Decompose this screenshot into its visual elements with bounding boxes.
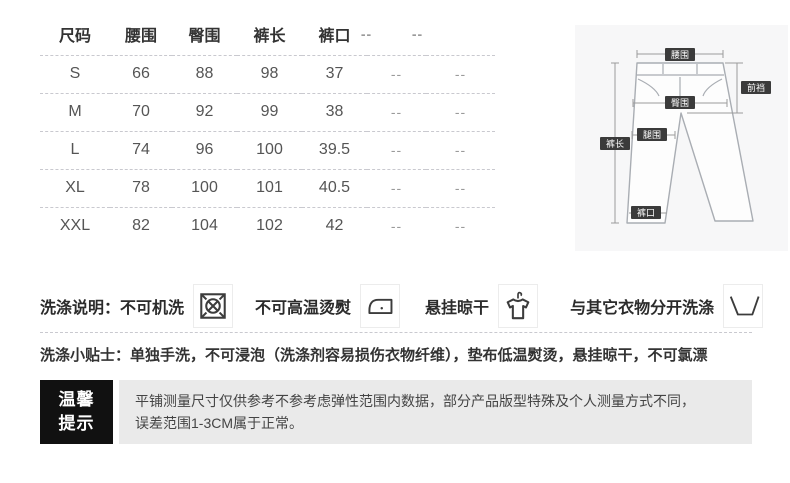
cell-hip: 92 [172, 93, 237, 131]
care-item-hang-dry: 悬挂晾干 [425, 284, 538, 328]
care-item-label: 不可机洗 [120, 294, 184, 318]
cell-dash: -- [367, 131, 426, 169]
wash-tips-text: 单独手洗，不可浸泡（洗涤剂容易损伤衣物纤维），垫布低温熨烫，悬挂晾干，不可氯漂 [130, 347, 708, 364]
cell-dash: -- [426, 93, 495, 131]
cell-hip: 104 [172, 207, 237, 245]
cell-hip: 88 [172, 55, 237, 93]
length-label-text: 裤长 [606, 138, 624, 149]
table-row: XL 78 100 101 40.5 -- -- [40, 169, 495, 207]
cell-waist: 78 [110, 169, 172, 207]
front-rise-label-text: 前裆 [747, 82, 765, 93]
cell-length: 102 [237, 207, 302, 245]
cell-size: S [40, 55, 110, 93]
cell-leg-opening: 42 [302, 207, 367, 245]
pants-measurement-diagram: 腰围 臀围 前裆 腿围 裤长 裤口 [575, 25, 788, 251]
hip-label: 臀围 [665, 96, 695, 109]
warm-notice-text: 平铺测量尺寸仅供参考不参考虑弹性范围内数据，部分产品版型特殊及个人测量方式不同，… [119, 380, 752, 444]
cell-leg-opening: 38 [302, 93, 367, 131]
cell-length: 99 [237, 93, 302, 131]
header-length: 裤长 [237, 14, 302, 55]
notice-line2: 误差范围1-3CM属于正常。 [135, 412, 740, 434]
table-row: M 70 92 99 38 -- -- [40, 93, 495, 131]
leg-opening-label: 裤口 [631, 206, 661, 219]
pants-diagram-svg: 腰围 臀围 前裆 腿围 裤长 裤口 [575, 25, 788, 251]
warm-notice: 温馨 提示 平铺测量尺寸仅供参考不参考虑弹性范围内数据，部分产品版型特殊及个人测… [40, 380, 752, 444]
care-item-no-hot-iron: 不可高温烫熨 [255, 284, 400, 328]
cell-dash: -- [426, 55, 495, 93]
waist-label-text: 腰围 [671, 50, 689, 60]
do-not-iron-icon [360, 284, 400, 328]
header-hip: 臀围 [172, 14, 237, 55]
cell-dash: -- [426, 169, 495, 207]
size-table: 尺码 腰围 臀围 裤长 裤口 -- -- S 66 88 98 37 -- --… [40, 14, 495, 245]
length-label: 裤长 [600, 137, 630, 150]
thigh-label-text: 腿围 [643, 130, 661, 140]
warm-notice-badge: 温馨 提示 [40, 380, 113, 444]
front-rise-label: 前裆 [741, 81, 771, 94]
cell-waist: 70 [110, 93, 172, 131]
cell-leg-opening: 37 [302, 55, 367, 93]
cell-waist: 74 [110, 131, 172, 169]
cell-dash: -- [367, 169, 426, 207]
care-item-label: 与其它衣物分开洗涤 [570, 294, 714, 318]
cell-leg-opening: 39.5 [302, 131, 367, 169]
cell-dash: -- [367, 93, 426, 131]
notice-line1: 平铺测量尺寸仅供参考不参考虑弹性范围内数据，部分产品版型特殊及个人测量方式不同， [135, 390, 740, 412]
cell-dash: -- [426, 207, 495, 245]
badge-line1: 温馨 [59, 388, 95, 412]
hip-label-text: 臀围 [671, 98, 689, 108]
cell-hip: 100 [172, 169, 237, 207]
cell-dash: -- [426, 131, 495, 169]
header-dash: -- [361, 26, 372, 42]
cell-waist: 66 [110, 55, 172, 93]
header-leg-opening: 裤口 [302, 14, 367, 55]
table-row: S 66 88 98 37 -- -- [40, 55, 495, 93]
cell-waist: 82 [110, 207, 172, 245]
header-waist: 腰围 [110, 14, 172, 55]
wash-tips: 洗涤小贴士：单独手洗，不可浸泡（洗涤剂容易损伤衣物纤维），垫布低温熨烫，悬挂晾干… [40, 344, 775, 365]
care-instructions-row: 洗涤说明： 不可机洗 不可高温烫熨 悬挂晾干 [40, 284, 752, 328]
cell-hip: 96 [172, 131, 237, 169]
pants-outline [627, 63, 753, 223]
cell-size: XL [40, 169, 110, 207]
cell-dash: -- [367, 55, 426, 93]
thigh-label: 腿围 [637, 128, 667, 141]
cell-length: 101 [237, 169, 302, 207]
cell-size: L [40, 131, 110, 169]
cell-leg-opening: 40.5 [302, 169, 367, 207]
care-item-wash-separately: 与其它衣物分开洗涤 [570, 284, 763, 328]
care-item-no-machine-wash: 不可机洗 [120, 284, 233, 328]
cell-dash: -- [367, 207, 426, 245]
care-item-label: 不可高温烫熨 [255, 294, 351, 318]
care-item-label: 悬挂晾干 [425, 294, 489, 318]
table-row: XXL 82 104 102 42 -- -- [40, 207, 495, 245]
do-not-machine-wash-icon [193, 284, 233, 328]
badge-line2: 提示 [59, 412, 95, 436]
leg-opening-label-text: 裤口 [637, 207, 655, 218]
cell-size: XXL [40, 207, 110, 245]
wash-tips-title: 洗涤小贴士： [40, 347, 130, 364]
table-row: L 74 96 100 39.5 -- -- [40, 131, 495, 169]
cell-length: 98 [237, 55, 302, 93]
header-dash: -- [412, 26, 423, 42]
table-header-row: 尺码 腰围 臀围 裤长 裤口 -- -- [40, 14, 495, 55]
care-title: 洗涤说明： [40, 294, 120, 318]
waist-label: 腰围 [665, 48, 695, 61]
size-chart-page: 尺码 腰围 臀围 裤长 裤口 -- -- S 66 88 98 37 -- --… [0, 0, 790, 483]
header-size: 尺码 [40, 14, 110, 55]
cell-size: M [40, 93, 110, 131]
header-empty-2: -- [426, 14, 495, 55]
wash-separately-icon [723, 284, 763, 328]
dashed-divider [40, 332, 752, 333]
hang-dry-icon [498, 284, 538, 328]
cell-length: 100 [237, 131, 302, 169]
